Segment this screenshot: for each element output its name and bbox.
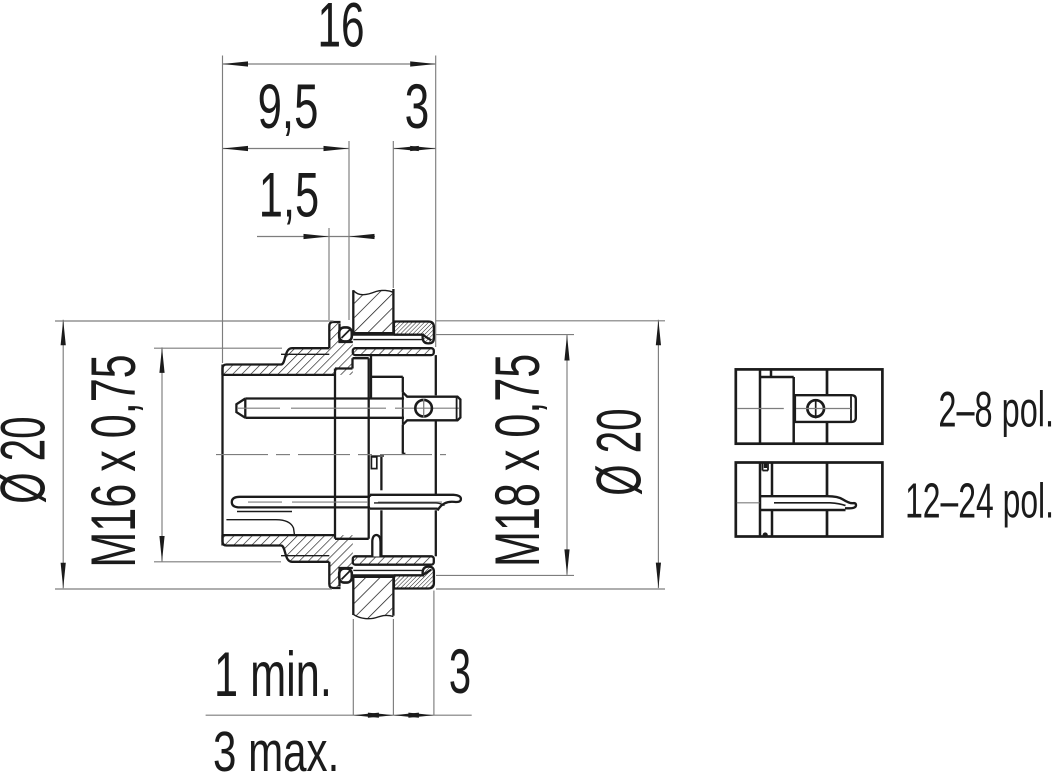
svg-text:2–8 pol.: 2–8 pol.: [938, 382, 1054, 438]
svg-text:1,5: 1,5: [259, 160, 319, 231]
svg-text:Ø 20: Ø 20: [0, 416, 59, 503]
svg-text:1 min.: 1 min.: [214, 639, 332, 710]
svg-text:3: 3: [405, 70, 430, 142]
svg-text:M16 x 0,75: M16 x 0,75: [79, 354, 149, 567]
svg-text:M18 x 0,75: M18 x 0,75: [483, 354, 553, 567]
svg-text:3 max.: 3 max.: [213, 720, 339, 777]
svg-text:3: 3: [449, 637, 471, 708]
svg-text:Ø 20: Ø 20: [584, 409, 654, 496]
svg-text:12–24 pol.: 12–24 pol.: [905, 472, 1054, 528]
svg-text:16: 16: [317, 0, 364, 60]
svg-text:9,5: 9,5: [258, 71, 319, 142]
